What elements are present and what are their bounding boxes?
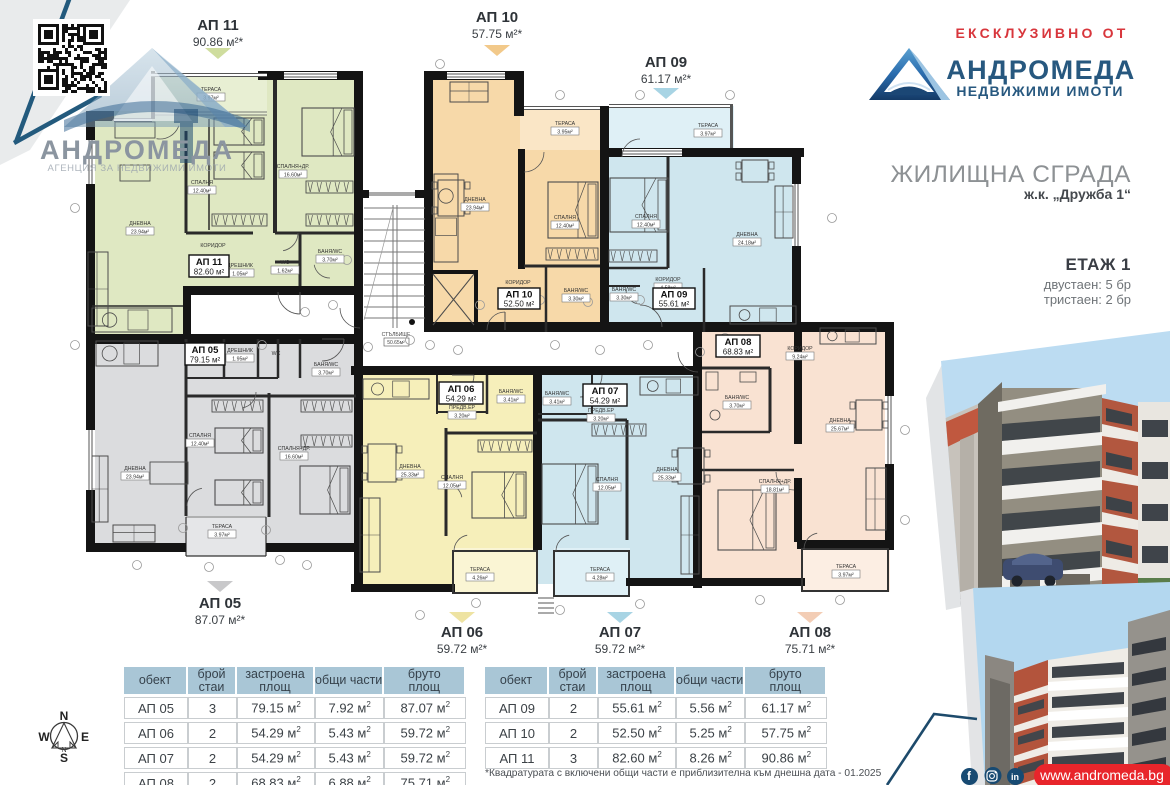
svg-text:БАНЯ/WC: БАНЯ/WC bbox=[314, 362, 339, 368]
svg-text:АП 11: АП 11 bbox=[197, 17, 238, 34]
svg-text:12.05м²: 12.05м² bbox=[443, 484, 462, 490]
svg-text:КОРИДОР: КОРИДОР bbox=[505, 280, 531, 286]
svg-text:ТЕРАСА: ТЕРАСА bbox=[212, 524, 233, 530]
svg-text:ТЕРАСА: ТЕРАСА bbox=[470, 567, 491, 573]
svg-text:3.97м²: 3.97м² bbox=[700, 132, 716, 138]
svg-text:ПРЕДВ.ЕР: ПРЕДВ.ЕР bbox=[588, 408, 615, 414]
svg-text:БАНЯ/WC: БАНЯ/WC bbox=[499, 389, 524, 395]
svg-text:54.29 м²: 54.29 м² bbox=[590, 396, 621, 405]
svg-text:9.24м²: 9.24м² bbox=[792, 355, 808, 361]
svg-text:АГЕНЦИЯ ЗА НЕДВИЖИМИ ИМОТИ: АГЕНЦИЯ ЗА НЕДВИЖИМИ ИМОТИ bbox=[48, 163, 227, 174]
svg-text:АП 05: АП 05 bbox=[192, 345, 219, 356]
svg-text:12.40м²: 12.40м² bbox=[556, 224, 575, 230]
svg-text:16.60м²: 16.60м² bbox=[285, 455, 304, 461]
svg-text:1.62м²: 1.62м² bbox=[277, 269, 293, 275]
svg-text:БАНЯ/WC: БАНЯ/WC bbox=[725, 395, 750, 401]
svg-text:КОРИДОР: КОРИДОР bbox=[655, 277, 681, 283]
svg-text:3.70м²: 3.70м² bbox=[318, 371, 334, 377]
svg-text:82.60 м²: 82.60 м² bbox=[194, 267, 225, 276]
svg-text:ТЕРАСА: ТЕРАСА bbox=[590, 567, 611, 573]
svg-text:12.40м²: 12.40м² bbox=[637, 223, 656, 229]
svg-text:54.29 м²: 54.29 м² bbox=[446, 394, 477, 403]
svg-text:ТЕРАСА: ТЕРАСА bbox=[698, 123, 719, 129]
svg-text:3.20м²: 3.20м² bbox=[593, 417, 609, 423]
svg-text:КОРИДОР: КОРИДОР bbox=[787, 346, 813, 352]
svg-text:50.65м²: 50.65м² bbox=[387, 340, 405, 346]
svg-text:ДНЕВНА: ДНЕВНА bbox=[829, 418, 851, 424]
svg-text:3.41м²: 3.41м² bbox=[549, 400, 565, 406]
svg-text:25.67м²: 25.67м² bbox=[831, 427, 850, 433]
svg-text:4.28м²: 4.28м² bbox=[592, 576, 608, 582]
svg-text:СПАЛНЯ: СПАЛНЯ bbox=[635, 214, 657, 220]
svg-text:БАНЯ/WC: БАНЯ/WC bbox=[564, 288, 589, 294]
svg-text:двустаен: 5 бр: двустаен: 5 бр bbox=[1044, 277, 1131, 292]
svg-text:E: E bbox=[81, 730, 89, 744]
svg-text:25.33м²: 25.33м² bbox=[401, 473, 420, 479]
svg-text:ж.к. „Дружба 1“: ж.к. „Дружба 1“ bbox=[1023, 186, 1131, 202]
svg-text:3.41м²: 3.41м² bbox=[503, 398, 519, 404]
svg-text:КОРИДОР: КОРИДОР bbox=[200, 243, 226, 249]
svg-text:23.94м²: 23.94м² bbox=[126, 475, 145, 481]
svg-text:N: N bbox=[60, 709, 69, 723]
svg-text:АП 09: АП 09 bbox=[645, 54, 687, 71]
svg-text:12.40м²: 12.40м² bbox=[191, 442, 210, 448]
svg-text:ЕКСКЛУЗИВНО ОТ: ЕКСКЛУЗИВНО ОТ bbox=[956, 25, 1129, 41]
svg-text:3.70м²: 3.70м² bbox=[322, 258, 338, 264]
svg-text:1.95м²: 1.95м² bbox=[232, 357, 248, 363]
svg-text:АП 07: АП 07 bbox=[599, 624, 641, 641]
svg-text:СПАЛНЯ+ДР.: СПАЛНЯ+ДР. bbox=[277, 164, 309, 170]
svg-text:ДНЕВНА: ДНЕВНА bbox=[656, 467, 678, 473]
svg-text:ЕТАЖ 1: ЕТАЖ 1 bbox=[1066, 255, 1131, 274]
svg-text:ПРЕДВ.ЕР: ПРЕДВ.ЕР bbox=[449, 405, 476, 411]
svg-text:АНДРОМЕДА: АНДРОМЕДА bbox=[40, 135, 234, 165]
svg-text:in: in bbox=[1011, 772, 1019, 782]
svg-text:СПАЛНЯ+ДР.: СПАЛНЯ+ДР. bbox=[278, 446, 310, 452]
svg-text:79.15 м²: 79.15 м² bbox=[190, 355, 221, 364]
svg-text:4.26м²: 4.26м² bbox=[472, 576, 488, 582]
svg-text:ДНЕВНА: ДНЕВНА bbox=[129, 221, 151, 227]
svg-text:W: W bbox=[38, 730, 50, 744]
svg-text:СПАЛНЯ+ДР.: СПАЛНЯ+ДР. bbox=[759, 479, 791, 485]
svg-text:СПАЛНЯ: СПАЛНЯ bbox=[596, 477, 618, 483]
svg-text:ДРЕШНИК: ДРЕШНИК bbox=[227, 263, 253, 269]
svg-text:БАНЯ/WC: БАНЯ/WC bbox=[612, 287, 637, 293]
svg-text:АП 08: АП 08 bbox=[725, 337, 752, 348]
svg-text:3.97м²: 3.97м² bbox=[838, 573, 854, 579]
svg-text:ДНЕВНА: ДНЕВНА bbox=[399, 464, 421, 470]
svg-text:61.17 м²*: 61.17 м²* bbox=[641, 72, 692, 86]
svg-text:12.05м²: 12.05м² bbox=[598, 486, 617, 492]
svg-text:18.81м²: 18.81м² bbox=[766, 488, 785, 494]
svg-text:N: N bbox=[61, 747, 66, 754]
svg-text:АП 10: АП 10 bbox=[476, 9, 518, 26]
svg-text:БАНЯ/WC: БАНЯ/WC bbox=[545, 391, 570, 397]
svg-text:24.18м²: 24.18м² bbox=[738, 241, 757, 247]
svg-text:3.20м²: 3.20м² bbox=[454, 414, 470, 420]
svg-text:www.andromeda.bg: www.andromeda.bg bbox=[1039, 767, 1164, 783]
svg-text:АНДРОМЕДА: АНДРОМЕДА bbox=[946, 55, 1136, 85]
svg-text:1.05м²: 1.05м² bbox=[232, 272, 248, 278]
svg-text:АП 06: АП 06 bbox=[448, 384, 475, 395]
svg-text:3.70м²: 3.70м² bbox=[729, 404, 745, 410]
svg-text:57.75 м²*: 57.75 м²* bbox=[472, 27, 523, 41]
svg-text:ТЕРАСА: ТЕРАСА bbox=[555, 121, 576, 127]
svg-text:3.97м²: 3.97м² bbox=[214, 533, 230, 539]
svg-text:3.30м²: 3.30м² bbox=[568, 297, 584, 303]
svg-text:3.95м²: 3.95м² bbox=[557, 130, 573, 136]
svg-text:ТЕРАСА: ТЕРАСА bbox=[836, 564, 857, 570]
svg-text:90.86 м²*: 90.86 м²* bbox=[193, 35, 244, 49]
svg-text:ДНЕВНА: ДНЕВНА bbox=[736, 232, 758, 238]
svg-text:СПАЛНЯ: СПАЛНЯ bbox=[441, 475, 463, 481]
svg-text:WC: WC bbox=[272, 351, 281, 357]
svg-text:ДРЕШНИК: ДРЕШНИК bbox=[227, 348, 253, 354]
svg-text:ЖИЛИЩНА СГРАДА: ЖИЛИЩНА СГРАДА bbox=[891, 161, 1132, 188]
svg-text:55.61 м²: 55.61 м² bbox=[659, 299, 690, 308]
svg-text:БАНЯ/WC: БАНЯ/WC bbox=[318, 249, 343, 255]
svg-text:23.94м²: 23.94м² bbox=[131, 230, 150, 236]
svg-text:АП 05: АП 05 bbox=[199, 595, 241, 612]
svg-text:3.30м²: 3.30м² bbox=[616, 296, 632, 302]
svg-text:АП 11: АП 11 bbox=[196, 257, 223, 268]
svg-text:68.83 м²: 68.83 м² bbox=[723, 347, 754, 356]
svg-text:АП 08: АП 08 bbox=[789, 624, 831, 641]
svg-text:НЕДВИЖИМИ ИМОТИ: НЕДВИЖИМИ ИМОТИ bbox=[956, 83, 1123, 99]
svg-text:12.40м²: 12.40м² bbox=[193, 189, 212, 195]
svg-text:23.94м²: 23.94м² bbox=[466, 206, 485, 212]
svg-text:СПАЛНЯ: СПАЛНЯ bbox=[191, 180, 213, 186]
svg-text:АП 06: АП 06 bbox=[441, 624, 483, 641]
svg-text:АП 07: АП 07 bbox=[592, 386, 619, 397]
svg-text:59.72 м²*: 59.72 м²* bbox=[437, 642, 488, 656]
svg-text:16.60м²: 16.60м² bbox=[284, 173, 303, 179]
svg-text:59.72 м²*: 59.72 м²* bbox=[595, 642, 646, 656]
svg-text:ДНЕВНА: ДНЕВНА bbox=[124, 466, 146, 472]
svg-text:25.33м²: 25.33м² bbox=[658, 476, 677, 482]
svg-text:тристаен: 2 бр: тристаен: 2 бр bbox=[1044, 292, 1131, 307]
svg-text:СПАЛНЯ: СПАЛНЯ bbox=[554, 215, 576, 221]
svg-text:WC: WC bbox=[281, 260, 290, 266]
svg-text:75.71 м²*: 75.71 м²* bbox=[785, 642, 836, 656]
svg-text:СПАЛНЯ: СПАЛНЯ bbox=[189, 433, 211, 439]
svg-text:87.07 м²*: 87.07 м²* bbox=[195, 613, 246, 627]
svg-text:ДНЕВНА: ДНЕВНА bbox=[464, 197, 486, 203]
svg-text:52.50 м²: 52.50 м² bbox=[504, 299, 535, 308]
